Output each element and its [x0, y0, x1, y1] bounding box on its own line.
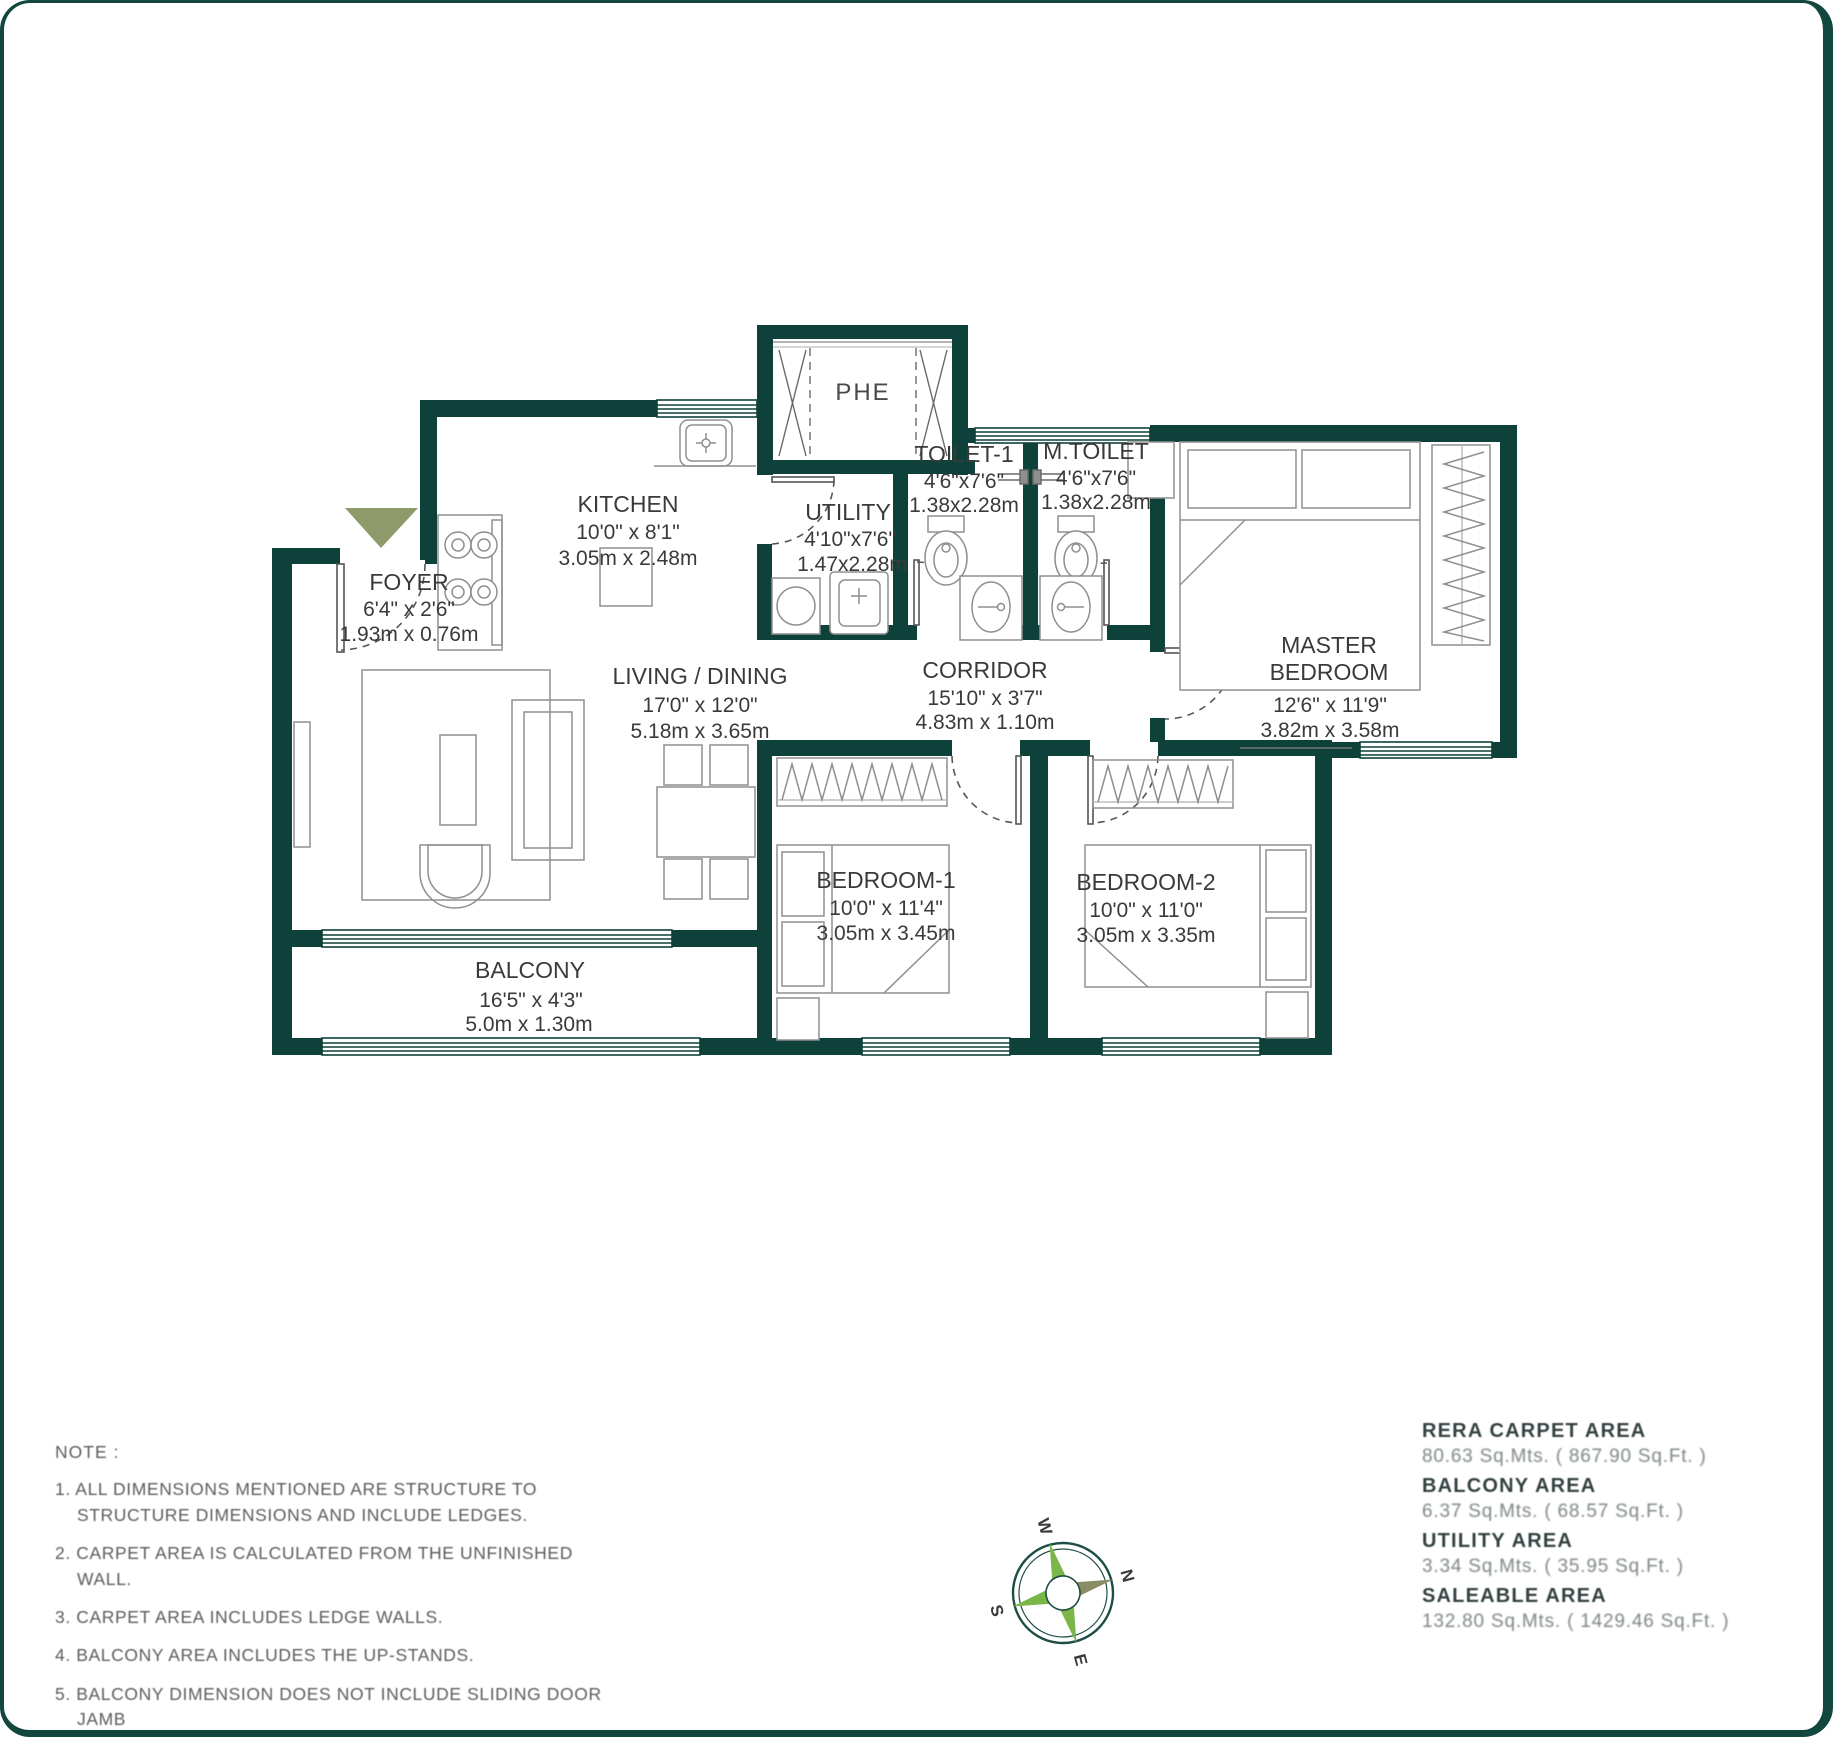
bedroom2-dim-m: 3.05m x 3.35m [1077, 924, 1216, 947]
master-dim-m: 3.82m x 3.58m [1261, 719, 1400, 742]
utility-label: UTILITY [805, 499, 891, 525]
corridor-dim-ft: 15'10" x 3'7" [927, 687, 1042, 710]
area-row: UTILITY AREA 3.34 Sq.Mts. ( 35.95 Sq.Ft.… [1422, 1530, 1782, 1578]
balcony-outer-window [322, 1038, 700, 1055]
corridor-dim-m: 4.83m x 1.10m [916, 711, 1055, 734]
mtoilet-dim-m: 1.38x2.28m [1041, 491, 1151, 514]
toilet1-label: TOILET-1 [914, 441, 1013, 467]
mtoilet-basin-icon [1040, 576, 1102, 640]
compass-w-label: W [1033, 1516, 1056, 1537]
living-label: LIVING / DINING [612, 663, 787, 689]
area-row: BALCONY AREA 6.37 Sq.Mts. ( 68.57 Sq.Ft.… [1422, 1475, 1782, 1523]
living-balcony-slider [322, 930, 672, 947]
dining-set-icon [657, 745, 755, 899]
mtoilet-label: M.TOILET [1043, 438, 1149, 464]
area-label: SALEABLE AREA [1422, 1585, 1782, 1608]
living-tv-unit [294, 722, 310, 847]
kitchen-dim-ft: 10'0" x 8'1" [576, 521, 680, 544]
kitchen-dim-m: 3.05m x 2.48m [559, 547, 698, 570]
area-row: SALEABLE AREA 132.80 Sq.Mts. ( 1429.46 S… [1422, 1585, 1782, 1633]
living-dim-ft: 17'0" x 12'0" [642, 694, 757, 717]
bedroom1-dim-m: 3.05m x 3.45m [817, 922, 956, 945]
bedroom2-label: BEDROOM-2 [1076, 869, 1215, 895]
shaft-x-panel-left [779, 348, 810, 458]
foyer-dim-ft: 6'4" x 2'6" [363, 598, 455, 621]
utility-washer-icon [772, 578, 820, 634]
area-value: 3.34 Sq.Mts. ( 35.95 Sq.Ft. ) [1422, 1556, 1782, 1578]
note-item: 4. BALCONY AREA INCLUDES THE UP-STANDS. [55, 1643, 620, 1668]
bedroom2-window [1102, 1038, 1260, 1055]
note-item: 3. CARPET AREA INCLUDES LEDGE WALLS. [55, 1605, 620, 1630]
note-item: 5. BALCONY DIMENSION DOES NOT INCLUDE SL… [55, 1682, 620, 1733]
area-row: RERA CARPET AREA 80.63 Sq.Mts. ( 867.90 … [1422, 1420, 1782, 1468]
notes-block: NOTE : 1. ALL DIMENSIONS MENTIONED ARE S… [55, 1440, 620, 1737]
compass-n-label: N [1116, 1567, 1138, 1584]
balcony-dim-ft: 16'5" x 4'3" [479, 989, 583, 1012]
notes-heading: NOTE : [55, 1440, 620, 1465]
balcony-dim-m: 5.0m x 1.30m [465, 1013, 592, 1036]
entrance-arrow-icon [345, 508, 418, 548]
area-value: 132.80 Sq.Mts. ( 1429.46 Sq.Ft. ) [1422, 1611, 1782, 1633]
bedroom1-side-table [777, 998, 819, 1040]
living-dim-m: 5.18m x 3.65m [631, 720, 770, 743]
toilet1-dim-m: 1.38x2.28m [909, 494, 1019, 517]
area-value: 6.37 Sq.Mts. ( 68.57 Sq.Ft. ) [1422, 1501, 1782, 1523]
bedroom1-window [862, 1038, 1010, 1055]
foyer-label: FOYER [369, 569, 448, 595]
area-label: BALCONY AREA [1422, 1475, 1782, 1498]
area-value: 80.63 Sq.Mts. ( 867.90 Sq.Ft. ) [1422, 1446, 1782, 1468]
toilet1-dim-ft: 4'6"x7'6" [924, 470, 1004, 493]
area-statement: RERA CARPET AREA 80.63 Sq.Mts. ( 867.90 … [1422, 1420, 1782, 1640]
kitchen-label: KITCHEN [578, 491, 679, 517]
master-bottom-window [1360, 742, 1492, 758]
note-item: 1. ALL DIMENSIONS MENTIONED ARE STRUCTUR… [55, 1477, 620, 1528]
toilet1-wc-icon [925, 516, 967, 585]
balcony-label: BALCONY [475, 957, 585, 983]
bedroom1-wardrobe-icon [777, 758, 947, 806]
toilet1-basin-icon [960, 576, 1022, 640]
compass-s-label: S [986, 1603, 1007, 1619]
area-label: UTILITY AREA [1422, 1530, 1782, 1553]
utility-dim-ft: 4'10"x7'6" [804, 528, 896, 551]
living-sofa-set-icon [362, 670, 584, 908]
mtoilet-dim-ft: 4'6"x7'6" [1056, 467, 1136, 490]
utility-sink-icon [830, 572, 888, 634]
master-label-line2: BEDROOM [1270, 659, 1389, 685]
floor-plan-page: PHE KITCHEN 10'0" x 8'1" 3.05m x 2.48m U… [0, 0, 1833, 1737]
master-wardrobe-icon [1432, 445, 1490, 645]
compass-icon: N E S W [986, 1516, 1140, 1670]
bedroom1-label: BEDROOM-1 [816, 867, 955, 893]
bedroom2-side-table [1266, 992, 1308, 1038]
master-dim-ft: 12'6" x 11'9" [1273, 694, 1387, 717]
kitchen-window [657, 400, 757, 417]
foyer-dim-m: 1.93m x 0.76m [340, 623, 479, 646]
utility-dim-m: 1.47x2.28m [797, 553, 907, 576]
master-label-line1: MASTER [1281, 632, 1377, 658]
compass-rose: N E S W [986, 1516, 1140, 1675]
compass-e-label: E [1070, 1652, 1091, 1668]
area-label: RERA CARPET AREA [1422, 1420, 1782, 1443]
kitchen-sink-icon [680, 420, 732, 466]
bedroom1-door [952, 756, 1021, 824]
bedroom1-dim-ft: 10'0" x 11'4" [829, 897, 943, 920]
bedroom2-wardrobe-icon [1093, 760, 1233, 808]
phe-label: PHE [835, 379, 890, 406]
note-item: 2. CARPET AREA IS CALCULATED FROM THE UN… [55, 1541, 620, 1592]
mtoilet-wc-icon [1055, 516, 1097, 585]
corridor-label: CORRIDOR [922, 657, 1047, 683]
bedroom2-dim-ft: 10'0" x 11'0" [1089, 899, 1203, 922]
